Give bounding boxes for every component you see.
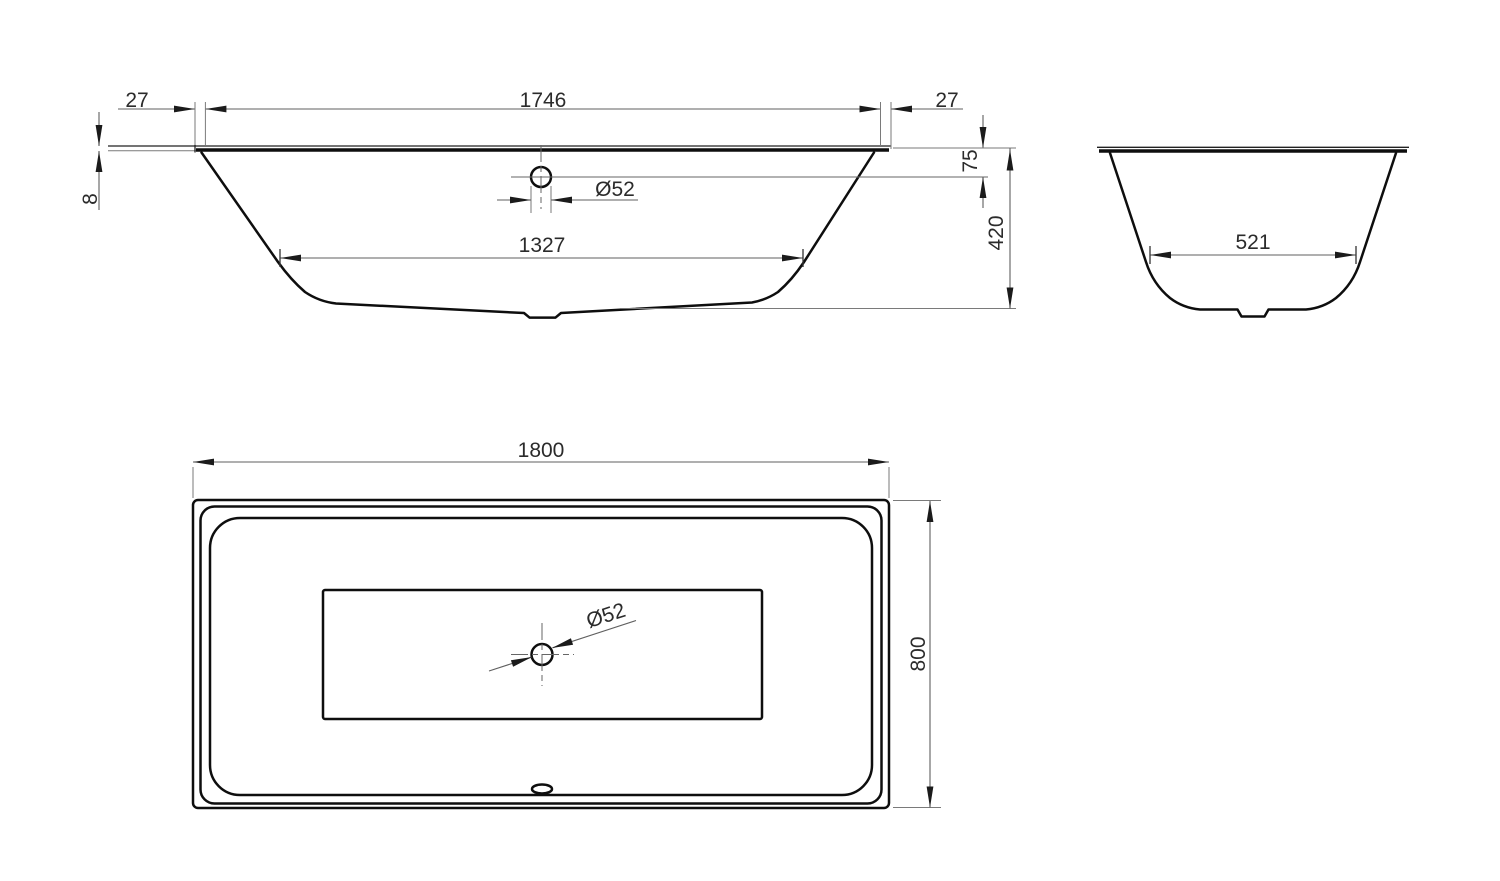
dim-side-height: 420 (620, 148, 1016, 309)
dim-side-bottom-length: 1327 (280, 234, 803, 267)
dim-side-rim-to-drain: 75 (959, 115, 986, 208)
dim-text-side-rim-to-drain: 75 (959, 149, 982, 172)
side-view-outline (108, 145, 891, 318)
end-view: 521 (1097, 147, 1409, 316)
dim-end-bottom-width: 521 (1150, 231, 1356, 264)
dim-text-side-height: 420 (985, 215, 1008, 250)
dim-text-side-bottom-length: 1327 (519, 234, 566, 257)
plan-opening-edge (210, 518, 872, 795)
dim-text-side-flange-length: 1746 (520, 89, 567, 112)
plan-drain-centerlines (511, 623, 574, 686)
dim-text-side-drain-diameter: Ø52 (595, 178, 635, 201)
plan-outer-edge (193, 500, 889, 808)
side-view: 27 1746 27 8 Ø52 75 (79, 89, 1016, 318)
side-drain-centerlines (511, 145, 988, 209)
dim-text-plan-width: 800 (907, 636, 930, 671)
dim-side-top-lengths: 27 1746 27 (118, 89, 963, 149)
dim-text-side-offset-right: 27 (935, 89, 958, 112)
dim-text-side-rim-thickness: 8 (79, 193, 102, 205)
dim-plan-width: 800 (893, 501, 941, 808)
dim-text-side-offset-left: 27 (125, 89, 148, 112)
plan-overflow-hole (532, 785, 552, 794)
dim-text-end-bottom-width: 521 (1235, 231, 1270, 254)
plan-view-outline (193, 500, 889, 808)
dim-side-drain: Ø52 (497, 178, 638, 213)
dim-plan-length: 1800 (193, 439, 889, 498)
plan-rim-inner-edge (201, 507, 882, 804)
bathtub-drawing: 27 1746 27 8 Ø52 75 (0, 0, 1500, 881)
dim-plan-drain: Ø52 (489, 599, 636, 671)
dim-text-plan-drain-diameter: Ø52 (584, 599, 629, 633)
technical-drawing-canvas: 27 1746 27 8 Ø52 75 (0, 0, 1500, 881)
dim-text-plan-length: 1800 (518, 439, 565, 462)
plan-view: 1800 800 Ø52 (193, 439, 941, 808)
dim-side-rim-thickness: 8 (79, 112, 102, 210)
